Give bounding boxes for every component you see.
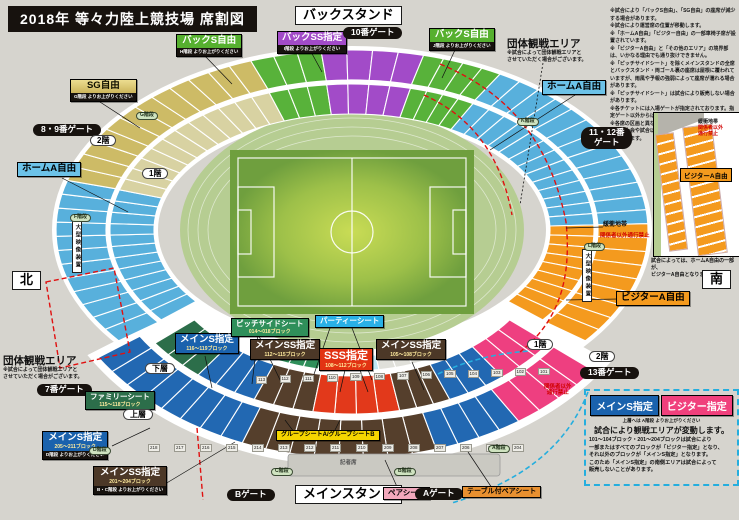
block-number: 113 bbox=[256, 376, 267, 384]
block-number: 210 bbox=[356, 444, 368, 452]
stair-l: L階段 bbox=[584, 243, 605, 251]
variable-area-info-box: メインS指定 ビジター指定 上層へは A階段 よりお上がりください 試合により観… bbox=[584, 389, 739, 486]
visitor-area-inset-map: 緩衝地帯 関係者以外 通行禁止 ビジターA自由 bbox=[653, 112, 739, 257]
sg-jiyu-label: SG自由G階段 よりお上がりください bbox=[70, 79, 137, 102]
block-number: 211 bbox=[330, 444, 341, 452]
upper-tier: 上層 bbox=[123, 409, 153, 420]
page-title: 2018年 等々力陸上競技場 席割図 bbox=[8, 6, 257, 32]
main-s-shitei-205-label: メインS指定205〜211ブロックD階段 よりお上がりください bbox=[42, 431, 108, 460]
group-area-top: 団体観戦エリア※試合によって団体観戦エリアと させていただく場合がございます。 bbox=[507, 38, 587, 64]
inset-visitor-a-jiyu-label: ビジターA自由 bbox=[680, 168, 732, 182]
main-ss-shitei-112-label: メインSS指定112〜115ブロック bbox=[250, 339, 320, 360]
block-number: 104 bbox=[468, 370, 480, 378]
block-number: 106 bbox=[421, 371, 433, 379]
gate-8-9: 8・9番ゲート bbox=[33, 124, 101, 136]
block-number: 217 bbox=[174, 444, 186, 452]
family-seat-label: ファミリーシート115〜118ブロック bbox=[85, 391, 155, 410]
block-number: 213 bbox=[278, 444, 290, 452]
info-body: 101〜104ブロック・201〜204ブロックは試合により 一部またはすべてのブ… bbox=[586, 436, 737, 476]
gate-a: Aゲート bbox=[415, 488, 463, 500]
buffer-zone-map: 緩衝地帯 bbox=[603, 222, 627, 229]
back-stand-title: バックスタンド bbox=[295, 6, 402, 25]
block-number: 204 bbox=[512, 444, 524, 452]
gate-10: 10番ゲート bbox=[343, 27, 402, 39]
floor-2-left: 2階 bbox=[90, 135, 116, 146]
group-seat-ab-label: グループシートA/グループシートB bbox=[276, 430, 380, 441]
main-ss-shitei-105-label: メインSS指定105〜108ブロック bbox=[376, 339, 446, 360]
compass-south: 南 bbox=[702, 270, 731, 289]
stair-f: F階段 bbox=[70, 214, 91, 222]
table-pair-seat-label: テーブル付ペアシート bbox=[462, 486, 541, 498]
main-ss-shitei-201-label: メインSS指定201〜204ブロックB・C階段 よりお上がりください bbox=[93, 466, 167, 495]
inset-seat-column bbox=[682, 124, 728, 257]
block-number: 212 bbox=[304, 444, 316, 452]
block-number: 105 bbox=[444, 370, 456, 378]
no-entry-map: 関係者以外通行禁止 bbox=[600, 233, 650, 239]
home-a-jiyu-right-label: ホームA自由 bbox=[542, 80, 606, 95]
compass-north: 北 bbox=[12, 271, 41, 290]
block-number: 108 bbox=[374, 373, 386, 381]
gate-11-12: 11・12番 ゲート bbox=[581, 127, 632, 149]
main-s-shitei-legend: メインS指定 bbox=[590, 395, 659, 416]
video-screen-right: 大型映像装置 bbox=[582, 249, 592, 302]
home-a-jiyu-left-label: ホームA自由 bbox=[17, 162, 81, 177]
visitor-a-jiyu-map-label: ビジターA自由 bbox=[616, 291, 690, 306]
press-seats: 記者席 bbox=[340, 460, 357, 466]
lower-tier: 下層 bbox=[145, 363, 175, 374]
visitor-shitei-legend: ビジター指定 bbox=[661, 395, 733, 416]
stair-a: A階段 bbox=[488, 445, 510, 453]
stair-d: D階段 bbox=[89, 447, 111, 455]
block-number: 209 bbox=[382, 444, 394, 452]
party-seat-label: パーティーシート bbox=[315, 315, 384, 328]
block-number: 101 bbox=[538, 368, 550, 376]
inset-buffer-zone-label: 緩衝地帯 bbox=[698, 118, 718, 125]
pitchside-seat-label: ピッチサイドシート014〜018ブロック bbox=[231, 318, 309, 337]
gate-13: 13番ゲート bbox=[580, 367, 639, 379]
video-screen-left: 大型映像装置 bbox=[72, 220, 82, 273]
gate-7: 7番ゲート bbox=[37, 384, 92, 396]
block-number: 110 bbox=[327, 374, 338, 382]
sss-shitei-label: SSS指定108〜112ブロック bbox=[319, 348, 373, 371]
block-number: 109 bbox=[350, 373, 362, 381]
block-number: 103 bbox=[491, 369, 503, 377]
stair-b: B階段 bbox=[394, 468, 416, 476]
block-number: 206 bbox=[460, 444, 472, 452]
info-headline: 試合により観戦エリアが変動します。 bbox=[586, 425, 737, 436]
block-number: 107 bbox=[397, 372, 409, 380]
block-number: 112 bbox=[280, 375, 291, 383]
back-s-jiyu-right-label: バックS自由J階段 よりお上がりください bbox=[429, 28, 495, 51]
block-number: 215 bbox=[226, 444, 238, 452]
block-number: 207 bbox=[434, 444, 446, 452]
no-entry-right: 関係者以外 通行禁止 bbox=[544, 384, 572, 397]
seat-map-page: 2018年 等々力陸上競技場 席割図 ※試合により「バックS自由」、「SG自由」… bbox=[0, 0, 739, 520]
block-number: 102 bbox=[515, 368, 527, 376]
floor-2-right: 2階 bbox=[589, 351, 615, 362]
stair-c: C階段 bbox=[271, 468, 293, 476]
inset-no-entry-label: 関係者以外 通行禁止 bbox=[698, 125, 723, 137]
block-number: 111 bbox=[303, 375, 314, 383]
floor-1-right: 1階 bbox=[527, 339, 553, 350]
back-s-jiyu-left-label: バックS自由H階段 よりお上がりください bbox=[176, 34, 242, 57]
back-ss-shitei-label: バックSS指定I階段 よりお上がりください bbox=[277, 31, 347, 54]
main-s-shitei-116-label: メインS指定116〜119ブロック bbox=[175, 333, 239, 354]
block-number: 216 bbox=[200, 444, 212, 452]
block-number: 208 bbox=[408, 444, 420, 452]
stair-k: K階段 bbox=[517, 118, 539, 126]
gate-b: Bゲート bbox=[227, 489, 275, 501]
info-stair-note: 上層へは A階段 よりお上がりください bbox=[586, 418, 737, 424]
block-number: 214 bbox=[252, 444, 264, 452]
stair-g: G階段 bbox=[136, 112, 158, 120]
floor-1-left: 1階 bbox=[142, 168, 168, 179]
block-number: 218 bbox=[148, 444, 160, 452]
group-area-bottom: 団体観戦エリア※試合によって団体観戦エリアと させていただく場合がございます。 bbox=[3, 355, 83, 381]
